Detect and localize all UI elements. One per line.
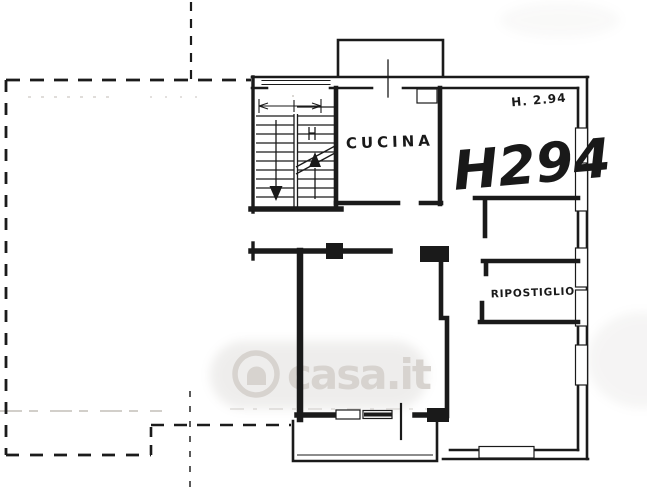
stair-dimension-line [259,99,321,113]
staircase [251,77,341,212]
wall-notch [427,408,449,422]
shaft-box [417,89,437,103]
stair-divider [294,114,298,208]
wall-pier [326,243,343,259]
wall-pier [420,246,449,262]
stair-landing-marks [309,127,315,140]
floor-plan-canvas: casa.it [0,0,647,497]
height-note: H. 2.94 [511,91,567,110]
watermark-text: casa.it [287,350,432,399]
floor-plan-page: casa.it [0,0,647,497]
watermark: casa.it [210,341,432,409]
stair-treads [256,107,334,197]
balcony-bottom [293,421,437,461]
window [576,345,588,385]
storage-top-wall [483,261,578,274]
balcony-top [338,40,443,76]
storage-bottom-wall [480,303,578,322]
window [479,447,534,459]
window [576,248,588,287]
kitchen-label: CUCINA [346,131,435,152]
window [336,410,360,419]
height-scrawl: H294 [450,126,613,203]
storage-label: RIPOSTIGLIO [491,286,576,301]
